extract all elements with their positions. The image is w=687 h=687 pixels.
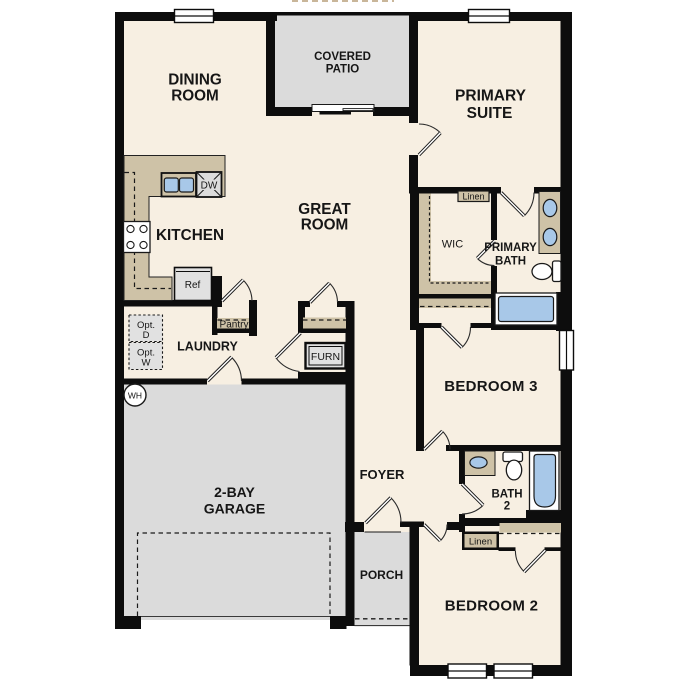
svg-text:FOYER: FOYER xyxy=(360,467,405,482)
svg-text:Linen: Linen xyxy=(462,192,484,202)
svg-text:WH: WH xyxy=(128,391,142,401)
svg-text:LAUNDRY: LAUNDRY xyxy=(177,340,238,354)
svg-text:BATH: BATH xyxy=(491,489,522,501)
svg-text:PORCH: PORCH xyxy=(360,568,403,582)
svg-text:PRIMARY: PRIMARY xyxy=(484,242,537,254)
svg-text:PATIO: PATIO xyxy=(326,64,359,76)
svg-text:FURN: FURN xyxy=(311,351,340,363)
svg-text:BEDROOM 3: BEDROOM 3 xyxy=(444,378,538,395)
svg-text:DINING: DINING xyxy=(168,72,222,89)
svg-text:PRIMARY: PRIMARY xyxy=(455,87,527,104)
svg-text:W: W xyxy=(142,358,151,369)
svg-text:D: D xyxy=(143,330,150,341)
svg-text:KITCHEN: KITCHEN xyxy=(156,227,224,244)
svg-text:COVERED: COVERED xyxy=(314,51,371,63)
svg-text:Linen: Linen xyxy=(469,537,492,548)
svg-text:2: 2 xyxy=(504,501,510,513)
svg-text:SUITE: SUITE xyxy=(467,105,513,122)
svg-text:GREAT: GREAT xyxy=(298,201,351,218)
svg-text:DW: DW xyxy=(201,181,218,192)
svg-text:Pantry: Pantry xyxy=(220,320,249,331)
svg-text:GARAGE: GARAGE xyxy=(204,501,265,517)
svg-text:ROOM: ROOM xyxy=(171,88,219,105)
svg-text:BEDROOM 2: BEDROOM 2 xyxy=(445,598,539,615)
svg-text:BATH: BATH xyxy=(495,256,526,268)
svg-text:WIC: WIC xyxy=(442,239,463,251)
svg-text:ROOM: ROOM xyxy=(301,217,349,234)
svg-text:Ref: Ref xyxy=(185,280,201,291)
svg-text:2-BAY: 2-BAY xyxy=(214,484,255,500)
